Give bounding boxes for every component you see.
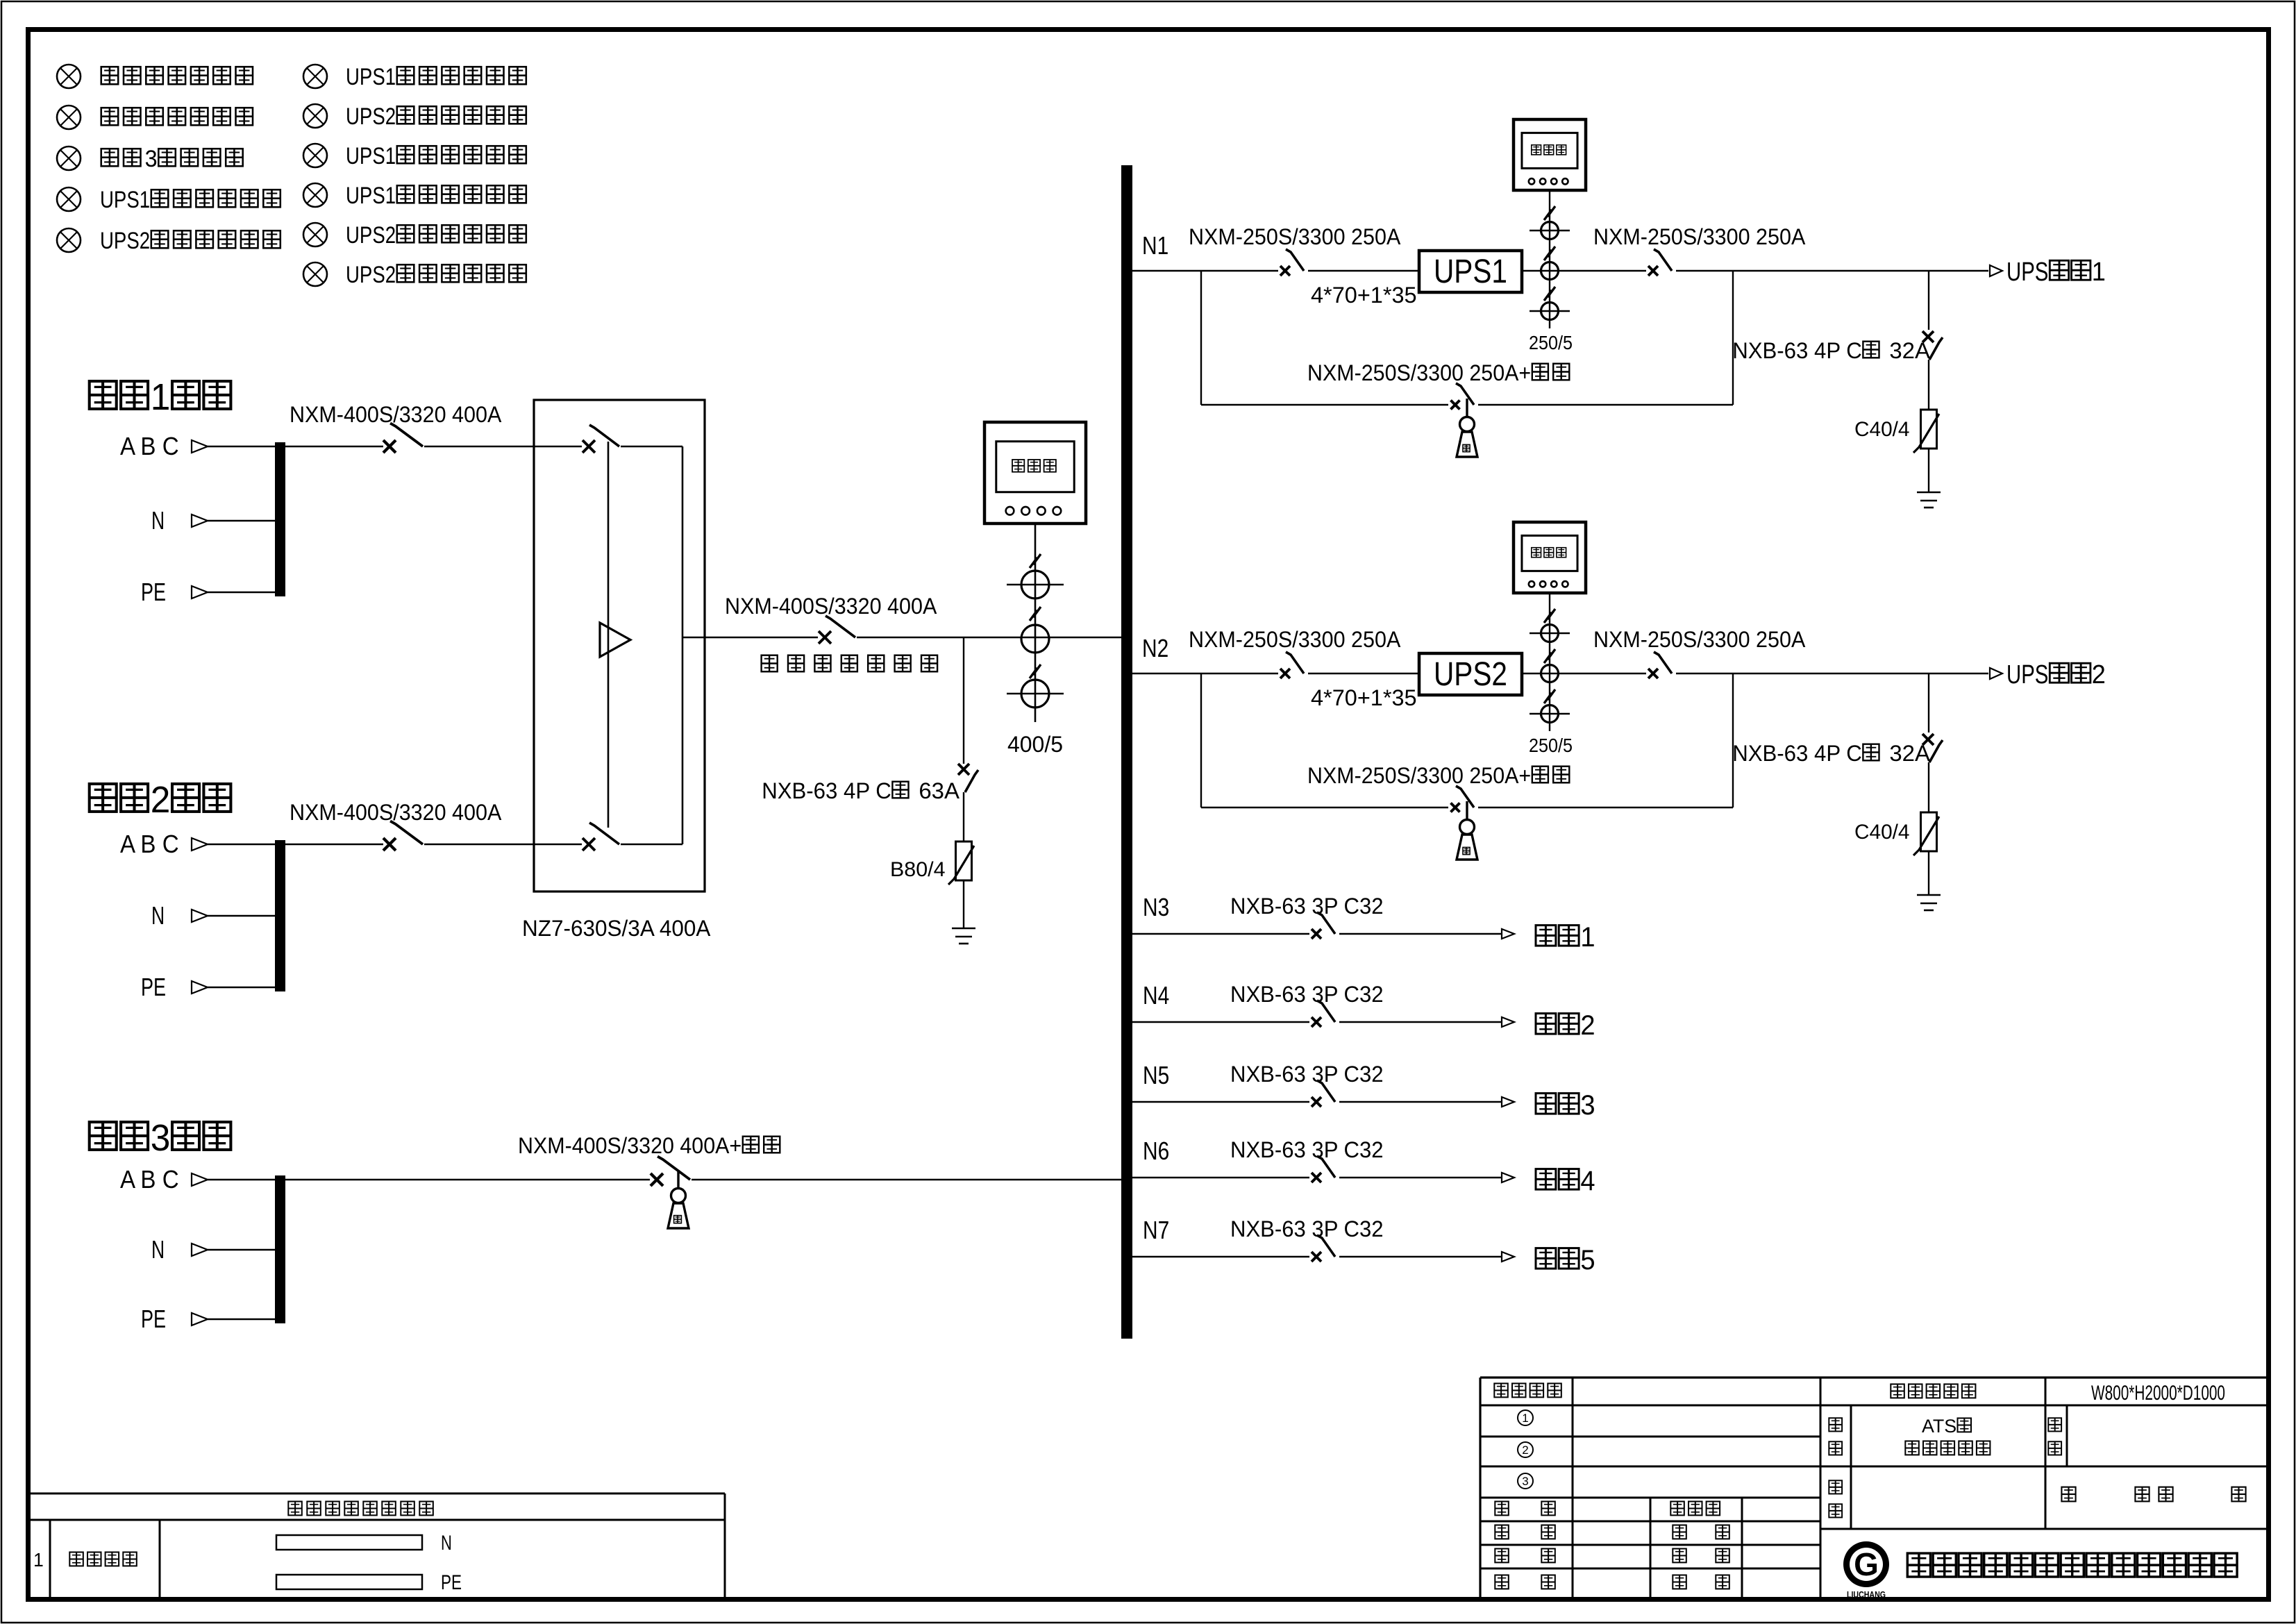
svg-text:N: N [151,506,165,535]
svg-text:NXM-250S/3300 250A: NXM-250S/3300 250A [1593,627,1806,652]
svg-text:PE: PE [141,973,166,1001]
svg-text:N: N [441,1532,452,1555]
svg-text:NXM-400S/3320 400A: NXM-400S/3320 400A [290,402,502,427]
svg-text:UPS2: UPS2 [100,228,150,254]
svg-text:NXB-63 3P C32: NXB-63 3P C32 [1230,1137,1384,1162]
svg-text:250/5: 250/5 [1529,735,1573,756]
svg-text:UPS2: UPS2 [346,103,396,130]
svg-text:32A: 32A [1883,741,1930,766]
svg-text:NXB-63 4P C: NXB-63 4P C [762,778,891,803]
svg-text:1: 1 [2092,258,2106,287]
svg-text:A B C: A B C [120,432,179,460]
svg-text:NXM-400S/3320 400A+: NXM-400S/3320 400A+ [518,1133,741,1158]
svg-text:UPS: UPS [2006,660,2048,689]
svg-text:NXM-250S/3300 250A+: NXM-250S/3300 250A+ [1307,360,1531,385]
svg-text:UPS2: UPS2 [1434,656,1507,693]
svg-text:G: G [1854,1546,1879,1582]
svg-text:1: 1 [151,376,171,418]
svg-text:NZ7-630S/3A 400A: NZ7-630S/3A 400A [522,916,711,941]
svg-text:4*70+1*35: 4*70+1*35 [1311,685,1417,710]
svg-text:N1: N1 [1142,231,1168,260]
svg-text:B80/4: B80/4 [890,858,946,881]
svg-text:3: 3 [145,146,158,172]
svg-text:UPS2: UPS2 [346,222,396,249]
svg-text:N4: N4 [1143,981,1169,1010]
svg-text:PE: PE [141,578,166,606]
svg-text:PE: PE [441,1571,462,1594]
svg-text:NXM-250S/3300 250A: NXM-250S/3300 250A [1593,224,1806,249]
svg-text:1: 1 [1580,922,1595,953]
svg-text:A B C: A B C [120,1165,179,1194]
svg-text:2: 2 [1580,1010,1595,1041]
svg-text:2: 2 [2092,660,2106,689]
svg-text:2: 2 [151,779,171,821]
svg-text:NXM-250S/3300 250A: NXM-250S/3300 250A [1189,627,1401,652]
svg-text:NXB-63 3P C32: NXB-63 3P C32 [1230,1216,1384,1241]
svg-text:NXB-63 3P C32: NXB-63 3P C32 [1230,894,1384,919]
svg-text:4: 4 [1580,1166,1595,1196]
svg-text:N7: N7 [1143,1216,1169,1244]
svg-text:NXM-400S/3320 400A: NXM-400S/3320 400A [290,800,502,825]
svg-text:NXM-250S/3300 250A+: NXM-250S/3300 250A+ [1307,763,1531,788]
svg-text:UPS2: UPS2 [346,262,396,288]
svg-text:32A: 32A [1883,338,1930,363]
svg-text:UPS1: UPS1 [346,64,396,90]
svg-text:3: 3 [1580,1090,1595,1121]
svg-text:3: 3 [1522,1475,1528,1488]
svg-text:1: 1 [1522,1412,1528,1425]
svg-text:NXB-63 3P C32: NXB-63 3P C32 [1230,1062,1384,1087]
svg-text:C40/4: C40/4 [1854,821,1910,844]
svg-text:400/5: 400/5 [1007,732,1063,757]
svg-text:4*70+1*35: 4*70+1*35 [1311,283,1417,308]
svg-text:N6: N6 [1143,1137,1169,1165]
svg-text:NXM-250S/3300 250A: NXM-250S/3300 250A [1189,224,1401,249]
svg-text:N: N [151,901,165,930]
svg-text:N: N [151,1235,165,1264]
svg-text:250/5: 250/5 [1529,332,1573,353]
svg-text:C40/4: C40/4 [1854,418,1910,441]
svg-text:UPS1: UPS1 [346,143,396,169]
svg-text:LIUCHANG: LIUCHANG [1847,1589,1886,1600]
svg-text:2: 2 [1522,1443,1528,1457]
svg-text:N3: N3 [1143,893,1169,921]
svg-text:UPS1: UPS1 [1434,253,1507,290]
svg-text:NXB-63 4P C: NXB-63 4P C [1732,741,1862,766]
svg-text:PE: PE [141,1305,166,1333]
svg-text:3: 3 [151,1117,171,1159]
svg-text:A B C: A B C [120,830,179,858]
svg-text:NXM-400S/3320 400A: NXM-400S/3320 400A [725,594,937,619]
svg-text:1: 1 [33,1549,44,1571]
svg-text:UPS1: UPS1 [100,187,150,213]
svg-text:NXB-63 3P C32: NXB-63 3P C32 [1230,982,1384,1007]
svg-text:N2: N2 [1142,634,1168,662]
svg-text:63A: 63A [912,778,960,803]
svg-text:UPS: UPS [2006,258,2048,287]
svg-text:ATS: ATS [1922,1416,1956,1437]
svg-text:W800*H2000*D1000: W800*H2000*D1000 [2091,1382,2225,1405]
svg-text:UPS1: UPS1 [346,183,396,209]
svg-text:NXB-63 4P C: NXB-63 4P C [1732,338,1862,363]
svg-text:N5: N5 [1143,1061,1169,1089]
svg-text:5: 5 [1580,1245,1595,1275]
